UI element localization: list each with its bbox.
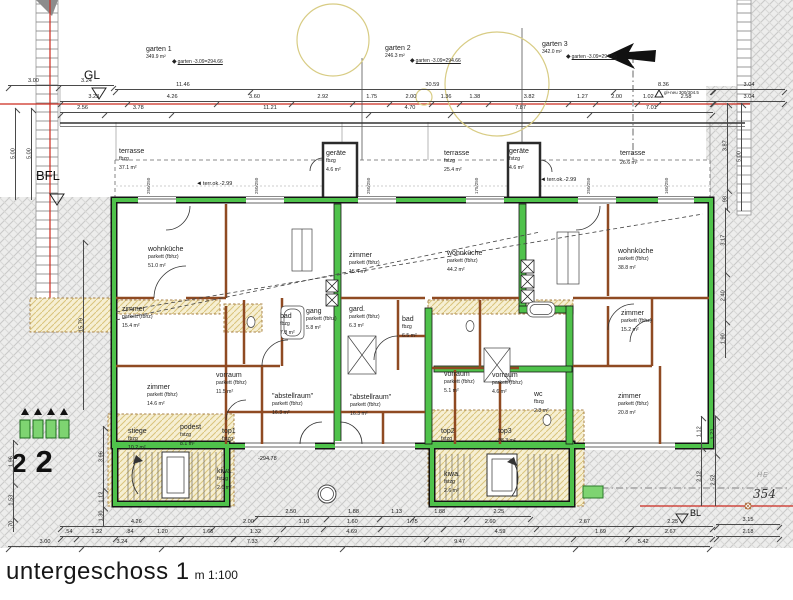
tree-outlines (297, 4, 549, 136)
dimension-value: 2.00 (213, 519, 285, 528)
garden-area: 349.9 m² (146, 54, 172, 60)
room-terrasse-3: terrasse26.6 m² (620, 150, 645, 167)
window-tag: 160/250 (664, 178, 669, 194)
dimension-value: 2.00 (596, 94, 638, 103)
level-arrow-icon: ◄ (196, 181, 202, 187)
dim-chain-right-b: 3.87.98 (720, 103, 731, 211)
dim-chain-left-a: 5.00 (8, 108, 19, 200)
garden-2-level: ◆garten -3.09=294.66 (410, 57, 461, 64)
dimension-value: 2.56 (60, 105, 105, 114)
dimension-value: 2.18 (716, 529, 780, 538)
dimension-value: 1.38 (460, 94, 489, 103)
dimension-value: 1.88 (327, 509, 381, 518)
dimension-value: 4.26 (128, 94, 217, 103)
dim-chain-right-c: 1.122.12 (694, 416, 705, 506)
level-marker-icon: ◆ (410, 58, 415, 64)
room-vorraum-3: vorraumparkett (fbhz)4.6 m² (492, 372, 523, 395)
room-zimmer-2: zimmerparkett (fbhz)14.6 m² (147, 384, 178, 407)
dimension-value: 3.60 (217, 94, 292, 103)
dimension-value: 1.53 (6, 483, 17, 517)
toilet (543, 415, 551, 426)
dimension-value: 2.25 (632, 519, 713, 528)
dimension-value: 1.75 (353, 94, 390, 103)
floorplan-drawing: garten 1 349.9 m² ◆garten -3.09=294.66 g… (0, 0, 793, 600)
dim-chain-left-d: 3.961.121.30 (96, 426, 107, 526)
room-zimmer-4: zimmerparkett (fbhz)15.2 m² (621, 310, 652, 333)
garden-name: garten 2 (385, 45, 411, 53)
dimension-value: 1.75 (381, 519, 444, 528)
bfl-marker-label: BFL (36, 168, 60, 183)
room-top1: top1fstzg (222, 428, 236, 445)
terrace-level-marker-2: ◄terr.ok.-2.99 (540, 177, 576, 183)
room-terrasse-1: terrassefbzg37.1 m² (119, 148, 144, 171)
room-abstellraum-1: "abstellraum"parkett (fbhz)16.3 m² (272, 393, 313, 416)
unit-numbers: 22 (12, 444, 53, 480)
dimension-value: 1.72 (708, 416, 719, 453)
dim-chain-right-e: 3.172.401.90 (718, 208, 729, 358)
room-bad-1: badfbzg7.8 m² (280, 313, 295, 336)
dimension-value: 2.12 (694, 447, 705, 506)
dim-chain-top-a: 3.003.24 (8, 78, 114, 87)
room-wohnkueche-1: wohnkücheparkett (fbhz)51.0 m² (148, 246, 183, 269)
floor-level-marker: -294.78 (258, 456, 277, 462)
dim-chain-bottom-c: .541.22.841.201.651.324.694.591.692.67 (60, 529, 713, 538)
dimension-value: 8.36 (614, 82, 713, 91)
dimension-value: 1.12 (694, 416, 705, 447)
dimension-value: 1.20 (143, 529, 181, 538)
dim-chain-top-right-a: 3.04 (713, 82, 785, 91)
dimension-value: 2.25 (467, 509, 531, 518)
room-vorraum-1: vorraumparkett (fbhz)11.5 m² (216, 372, 247, 395)
window-tag: 250/250 (366, 178, 371, 194)
dimension-value: 3.24 (59, 78, 114, 87)
dimension-value: .84 (116, 529, 143, 538)
room-vorraum-2: vorraumparkett (fbhz)5.1 m² (444, 371, 475, 394)
window-tag: 175/250 (474, 178, 479, 194)
dimension-value: 11.46 (115, 82, 251, 91)
window-tag: 250/250 (586, 178, 591, 194)
he-label: HE (757, 472, 769, 479)
dimension-value: 15.79 (76, 240, 87, 410)
dimension-value: 1.36 (432, 94, 460, 103)
dimension-value: 1.02 (638, 94, 659, 103)
garden-3-level: ◆garten -3.09=294.66 (566, 53, 617, 60)
dimension-value: 4.69 (277, 529, 427, 538)
dimension-value: 1.88 (413, 509, 467, 518)
room-zimmer-3: zimmerparkett (fbhz)15.4 m² (349, 252, 380, 275)
dimension-value: 7.33 (162, 539, 343, 548)
dimension-value: 1.69 (574, 529, 628, 538)
dimension-value: 3.00 (8, 78, 59, 87)
dim-chain-top-right-b: 3.04 (713, 94, 785, 103)
dimension-value: 2.00 (390, 94, 432, 103)
room-top3: top398.3 m² (498, 428, 516, 445)
dimension-value: 5.00 (8, 108, 19, 200)
title-text: untergeschoss 1 (6, 558, 190, 585)
dimension-value: 3.24 (82, 539, 162, 548)
toilet (247, 317, 255, 328)
dimension-value: 2.67 (628, 529, 713, 538)
room-kiwa-1: kiwa.fstzg2.6 m² (217, 468, 233, 491)
dimension-value: 2.92 (292, 94, 353, 103)
room-bad-2: badfbzg6.5 m² (402, 316, 417, 339)
room-stiege: stiegefbzg10.2 m² (128, 428, 147, 451)
dimension-value: 1.22 (77, 529, 116, 538)
room-zimmer-5: zimmerparkett (fbhz)20.8 m² (618, 393, 649, 416)
dimension-value: 1.32 (234, 529, 276, 538)
dimension-value: 3.15 (716, 517, 780, 526)
dimension-value: .70 (6, 517, 17, 532)
dimension-value: 7.01 (590, 105, 713, 114)
dimension-value: .54 (60, 529, 77, 538)
toilet (466, 321, 474, 332)
dimension-value: 5.00 (24, 108, 35, 200)
garden-1-level: ◆garten -3.09=294.66 (172, 58, 223, 65)
window-tag: 250/250 (146, 178, 151, 194)
room-garderobe: gard.parkett (fbhz)6.3 m² (349, 306, 380, 329)
room-gang: gangparkett (fbhz)5.8 m² (306, 308, 337, 331)
room-wc: wcfbzg2.8 m² (534, 391, 549, 414)
dimension-value: 30.59 (251, 82, 614, 91)
room-podest: podestfstzg8.1 m² (180, 424, 201, 447)
dim-chain-bottom-right-b: 2.18 (716, 529, 780, 538)
dimension-value: 3.04 (713, 94, 785, 103)
room-wohnkueche-3: wohnkücheparkett (fbhz)38.8 m² (618, 248, 653, 271)
dimension-value: 1.90 (718, 320, 729, 358)
dimension-value: 1.60 (324, 519, 381, 528)
dim-chain-right-d: 1.722.52 (708, 416, 719, 506)
dimension-value: 2.67 (537, 519, 633, 528)
dimension-value: 2.40 (718, 272, 729, 320)
garden-3-label: garten 3 342.0 m² (542, 41, 568, 55)
dim-chain-bottom-b: 4.262.001.101.601.752.602.672.25 (60, 519, 713, 528)
dim-chain-left-b: 5.00 (24, 108, 35, 200)
title-scale: m 1:100 (195, 568, 238, 582)
room-geraete-1: gerätefbzg4.6 m² (326, 150, 346, 173)
dimension-value: 3.17 (718, 208, 729, 272)
dim-chain-bottom-a: 2.501.881.131.882.25 (255, 509, 531, 518)
dimension-value: 3.00 (8, 539, 82, 548)
dim-chain-left-c: 1.961.53.70 (6, 440, 17, 532)
garden-name: garten 1 (146, 46, 172, 54)
level-marker-icon: ◆ (172, 59, 177, 65)
bl-marker-label: BL (690, 508, 701, 518)
garden-2-label: garten 2 246.3 m² (385, 45, 411, 59)
terrace-level-marker-1: ◄terr.ok.-2.99 (196, 181, 232, 187)
dimension-value: 3.23 (60, 94, 128, 103)
dimension-value: 1.12 (96, 488, 107, 506)
dimension-value: 3.96 (96, 426, 107, 488)
garden-area: 342.0 m² (542, 49, 568, 55)
dimension-value: 4.26 (60, 519, 213, 528)
room-kiwa-2: kiwa.fstzg2.6 m² (444, 471, 460, 494)
dimension-value: 5.42 (576, 539, 710, 548)
dimension-value: 4.70 (369, 105, 452, 114)
dimension-value: 1.30 (96, 506, 107, 526)
room-abstellraum-2: "abstellraum"parkett (fbhz)16.3 m² (350, 394, 391, 417)
room-wohnkueche-2: wohnkücheparkett (fbhz)44.2 m² (447, 250, 482, 273)
dim-chain-top-b: 11.4630.598.36 (115, 82, 713, 91)
dim-chain-right-a: 5.00 (734, 103, 745, 211)
dimension-value: 2.58 (659, 94, 713, 103)
dimension-value: 7.87 (451, 105, 589, 114)
dimension-value: 1.65 (182, 529, 235, 538)
dimension-value: 3.78 (105, 105, 171, 114)
dimension-value: 1.10 (284, 519, 323, 528)
dimension-value: 4.59 (427, 529, 574, 538)
dim-chain-top-c: 3.234.263.602.921.752.001.361.383.821.27… (60, 94, 713, 103)
dimension-value: 5.00 (734, 103, 745, 211)
dimension-value: 2.52 (708, 453, 719, 506)
level-arrow-icon: ◄ (540, 177, 546, 183)
drawing-title: untergeschoss 1m 1:100 (6, 558, 238, 586)
room-terrasse-2: terrassefstzg25.4 m² (444, 150, 469, 173)
dimension-value: 1.27 (569, 94, 596, 103)
dimension-value: 2.50 (255, 509, 327, 518)
room-geraete-2: gerätefstzg4.6 m² (509, 148, 529, 171)
dimension-value: 3.87 (720, 103, 731, 189)
dimension-value: 1.96 (6, 440, 17, 483)
garden-area: 246.3 m² (385, 53, 411, 59)
room-zimmer-1: zimmerparkett (fbhz)15.4 m² (122, 306, 153, 329)
garden-name: garten 3 (542, 41, 568, 49)
garden-retaining-wall (60, 123, 745, 127)
dim-chain-bottom-d: 3.003.247.339.475.42 (8, 539, 710, 548)
dimension-value: 3.04 (713, 82, 785, 91)
dim-chain-left-e: 15.79 (76, 240, 87, 410)
boundary-point-354-label: 354 (753, 487, 776, 501)
dimension-value: 9.47 (343, 539, 577, 548)
room-top2: top2fstzg (441, 428, 455, 445)
garden-1-label: garten 1 349.9 m² (146, 46, 172, 60)
dimension-value: 1.13 (380, 509, 412, 518)
dim-chain-bottom-right-a: 3.15 (716, 517, 780, 526)
level-marker-icon: ◆ (566, 54, 571, 60)
dimension-value: 11.21 (172, 105, 369, 114)
dimension-value: 3.82 (489, 94, 569, 103)
dim-chain-top-d: 2.563.7811.214.707.877.01 (60, 105, 713, 114)
dimension-value: 2.60 (444, 519, 537, 528)
window-tag: 250/250 (254, 178, 259, 194)
